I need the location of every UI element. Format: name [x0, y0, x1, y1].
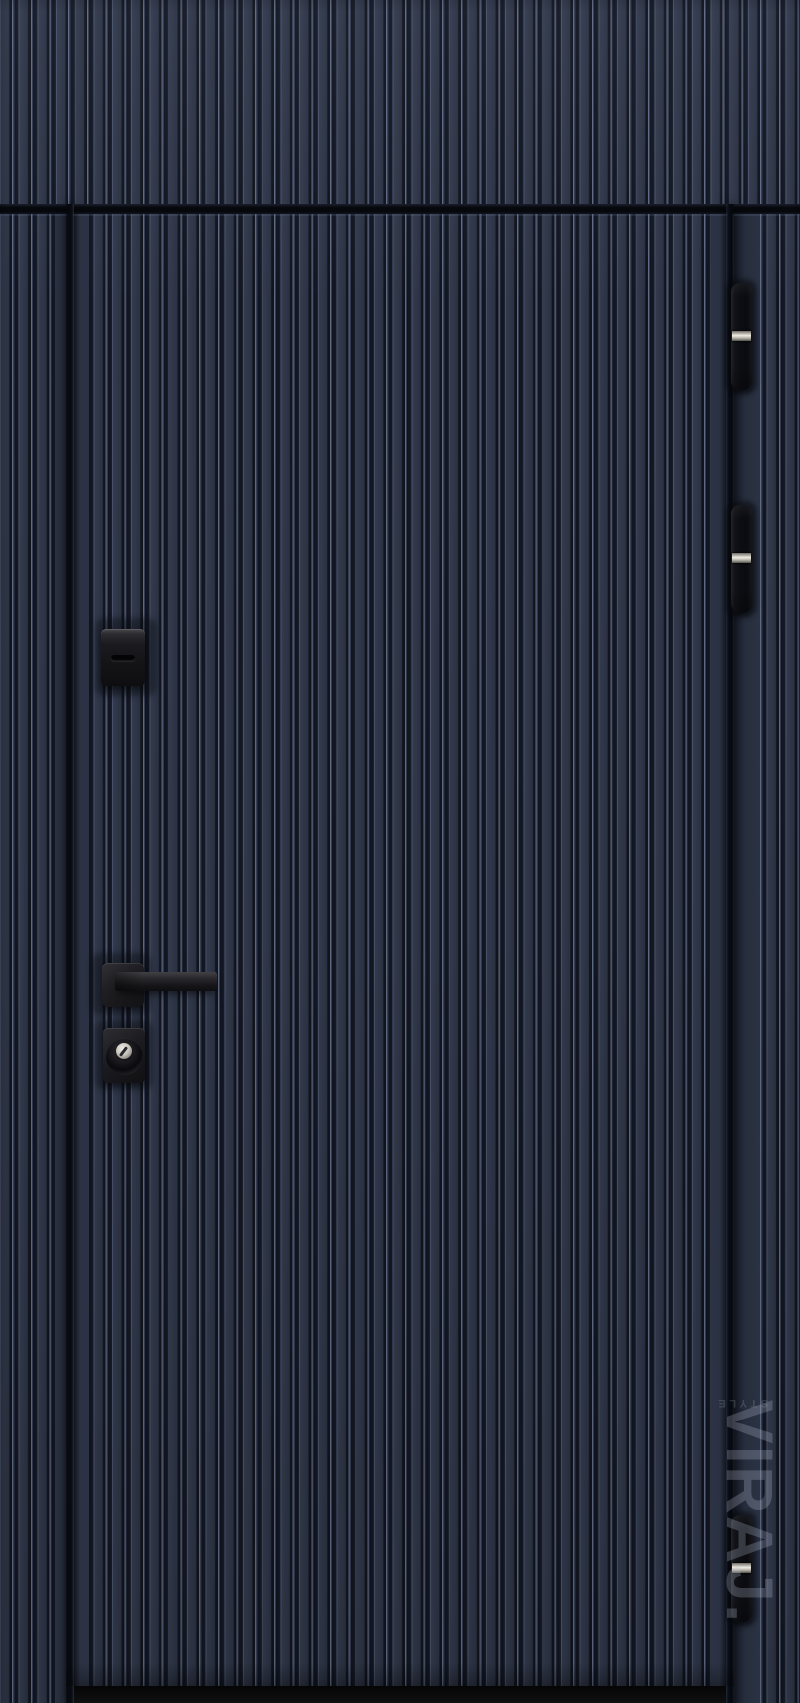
upper-lock-cover: [101, 629, 145, 686]
hinge-middle: [731, 505, 752, 613]
hinge-top: [731, 283, 752, 390]
threshold-shadow: [66, 1662, 734, 1686]
threshold: [74, 1686, 726, 1703]
cylinder-escutcheon: [103, 1028, 145, 1083]
hinge-steel-band: [732, 1563, 751, 1573]
hinge-steel-band: [732, 331, 751, 341]
frame-right-stile: [734, 214, 760, 1703]
leaf-left-stile: [74, 214, 89, 1703]
keyhole-slot: [111, 655, 135, 661]
fluted-texture: [0, 0, 800, 1703]
leaf-gap-left: [66, 204, 74, 1703]
key-cylinder: [116, 1043, 132, 1059]
door-handle-lever: [115, 972, 217, 991]
hinge-steel-band: [732, 553, 751, 563]
transom-groove-highlight: [0, 214, 800, 216]
hinge-bottom: [731, 1515, 752, 1622]
door-product-photo: STYLE VIRAJ.: [0, 0, 800, 1703]
leaf-right-stile: [711, 214, 727, 1703]
leaf-gap-right: [726, 204, 734, 1703]
transom-groove: [0, 204, 800, 214]
keyway-slot: [119, 1046, 128, 1057]
